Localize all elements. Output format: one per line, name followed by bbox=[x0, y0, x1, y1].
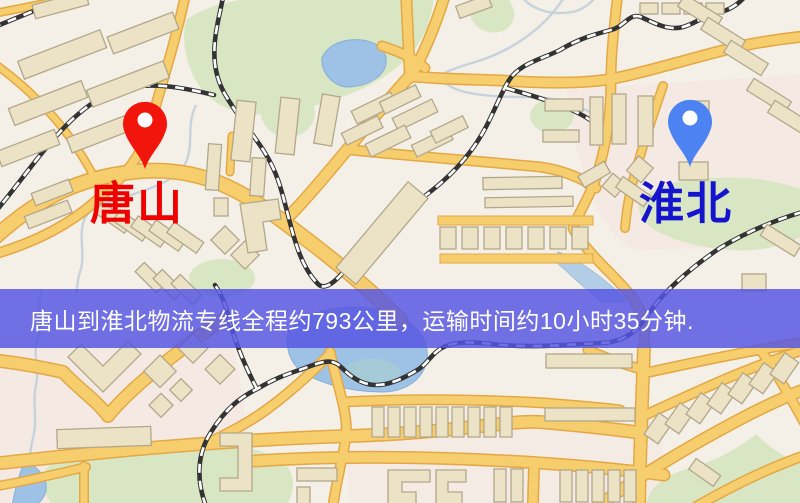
destination-city-label: 淮北 bbox=[639, 177, 733, 230]
map-canvas[interactable]: 唐山 淮北 bbox=[0, 0, 800, 503]
destination-pin-hole bbox=[683, 111, 698, 126]
route-info-banner: 唐山到淮北物流专线全程约793公里，运输时间约10小时35分钟. bbox=[0, 289, 800, 348]
origin-city-label: 唐山 bbox=[90, 177, 184, 230]
route-summary-text: 唐山到淮北物流专线全程约793公里，运输时间约10小时35分钟. bbox=[0, 302, 694, 336]
origin-pin-hole bbox=[138, 113, 153, 128]
